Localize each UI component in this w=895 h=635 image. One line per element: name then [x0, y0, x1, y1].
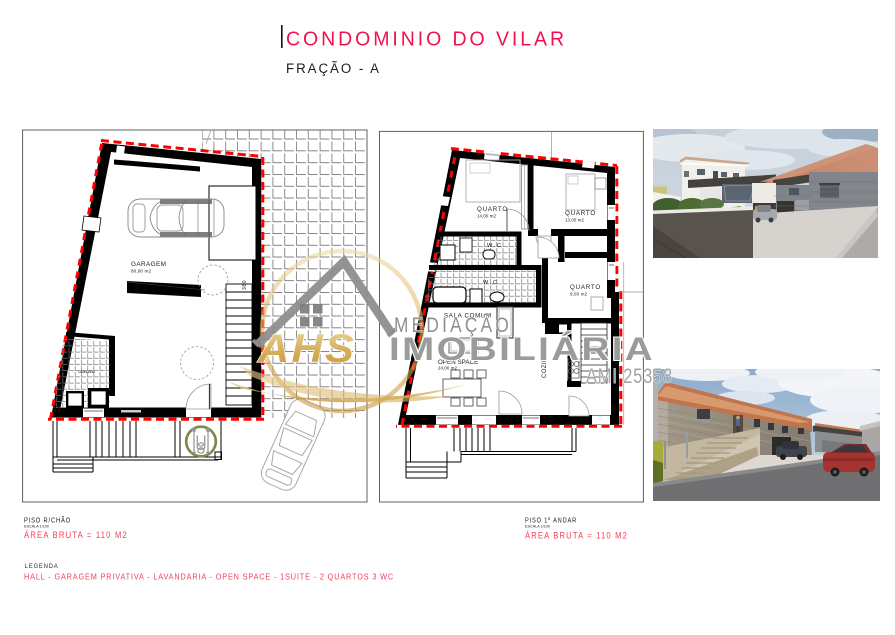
svg-text:HALL - GARAGEM PRIVATIVA - LAV: HALL - GARAGEM PRIVATIVA - LAVANDARIA - … — [24, 572, 394, 582]
svg-text:ÁREA BRUTA = 110 M2: ÁREA BRUTA = 110 M2 — [525, 531, 628, 542]
svg-text:9,00 m2: 9,00 m2 — [570, 292, 588, 297]
svg-text:W.C: W.C — [483, 280, 497, 286]
svg-text:CONDOMINIO DO VILAR: CONDOMINIO DO VILAR — [286, 29, 567, 51]
svg-text:AHS: AHS — [257, 327, 356, 371]
svg-text:AMI 25358: AMI 25358 — [586, 365, 673, 388]
svg-text:380: 380 — [242, 280, 248, 290]
svg-text:ÁREA BRUTA = 110 M2: ÁREA BRUTA = 110 M2 — [24, 530, 128, 541]
svg-text:QUARTO: QUARTO — [570, 284, 601, 291]
svg-text:W.C: W.C — [487, 243, 501, 249]
svg-text:14,00 m2: 14,00 m2 — [477, 214, 497, 219]
svg-text:LAVANDARIA: LAVANDARIA — [78, 370, 96, 374]
svg-text:ESCALA 1/100: ESCALA 1/100 — [525, 525, 550, 529]
svg-text:QUARTO: QUARTO — [565, 210, 596, 217]
svg-text:80,00 m2: 80,00 m2 — [131, 269, 151, 274]
svg-text:GARAGEM: GARAGEM — [131, 261, 167, 268]
svg-text:PISO R/CHÃO: PISO R/CHÃO — [24, 516, 71, 525]
svg-text:LEGENDA: LEGENDA — [25, 564, 59, 570]
svg-text:FRAÇÃO - A: FRAÇÃO - A — [286, 61, 381, 76]
svg-text:QUARTO: QUARTO — [477, 206, 508, 213]
svg-text:PISO 1º ANDAR: PISO 1º ANDAR — [525, 516, 577, 525]
svg-text:IMOBILIÁRIA: IMOBILIÁRIA — [389, 331, 655, 367]
svg-text:13,00 m2: 13,00 m2 — [565, 218, 585, 223]
svg-text:ESCALA 1/100: ESCALA 1/100 — [24, 525, 49, 529]
